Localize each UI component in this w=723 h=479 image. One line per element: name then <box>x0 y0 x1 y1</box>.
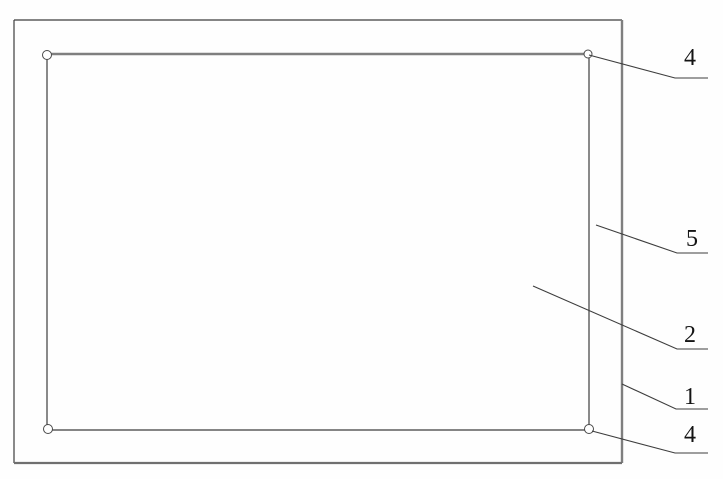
drawing-canvas <box>0 0 723 479</box>
callout-label-1: 1 <box>678 385 702 409</box>
corner-pad-circle-top-left <box>43 51 52 60</box>
corner-pad-circle-top-right <box>584 50 592 58</box>
callout-label-4-top: 4 <box>678 46 702 70</box>
technical-drawing: 4 5 2 1 4 <box>0 0 723 479</box>
inner-panel <box>47 54 589 430</box>
corner-pad-circle-bottom-left <box>44 425 53 434</box>
corner-pads <box>43 50 594 434</box>
callout-label-2: 2 <box>678 323 702 347</box>
callout-label-4-bottom: 4 <box>678 423 702 447</box>
corner-pad-circle-bottom-right <box>585 425 594 434</box>
callout-label-5: 5 <box>680 227 704 251</box>
outer-frame <box>14 20 622 463</box>
